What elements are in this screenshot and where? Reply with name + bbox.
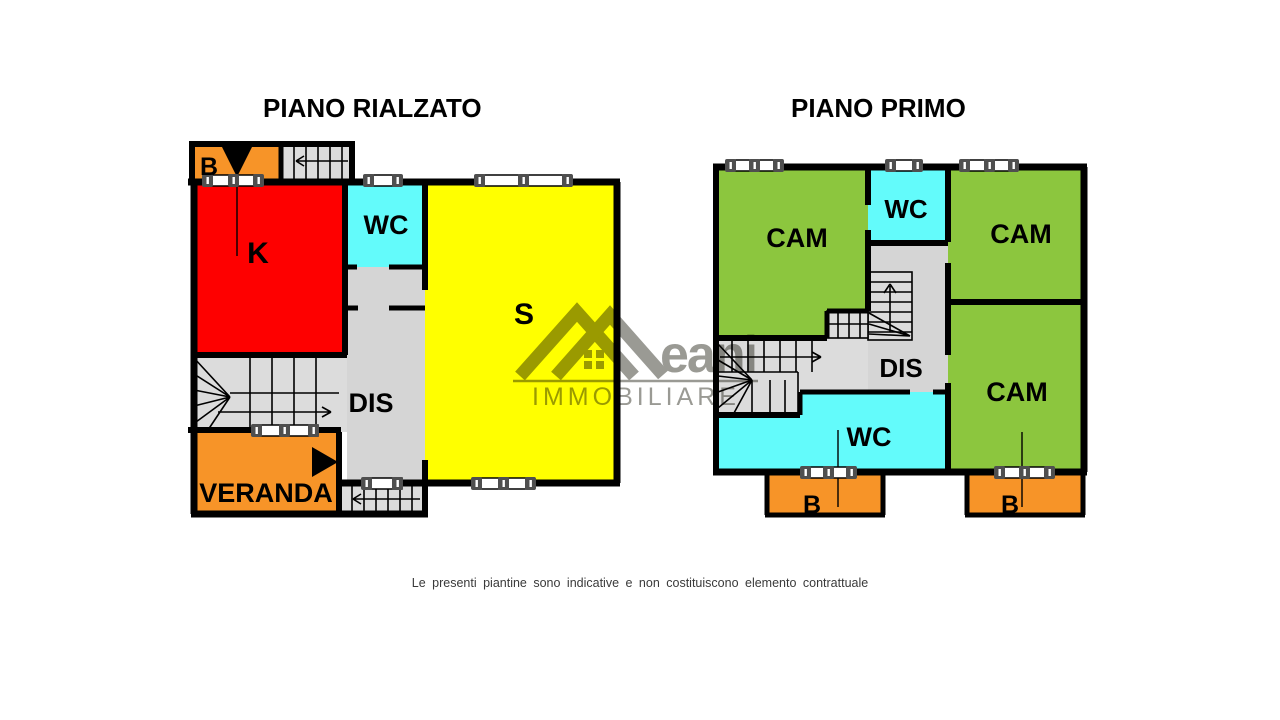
window-symbol [474,174,573,187]
label-kitchen: K [247,237,269,270]
room-living [425,182,617,483]
room-kitchen [191,182,347,357]
window-symbol [959,159,1019,172]
window-symbol [251,424,319,437]
floor-plan-rialzato: B K WC S DIS VERANDA [185,135,625,525]
label-cam-top-left: CAM [766,223,828,253]
disclaimer-text: Le presenti piantine sono indicative e n… [0,576,1280,590]
title-piano-primo: PIANO PRIMO [791,93,966,124]
window-symbol [800,466,857,479]
window-symbol [471,477,536,490]
floorplan-page: PIANO RIALZATO PIANO PRIMO [0,0,1280,720]
label-hall: DIS [348,388,393,418]
label-wc-top: WC [884,194,928,224]
label-veranda: VERANDA [199,478,333,508]
label-wc-bottom: WC [847,422,892,452]
label-hall: DIS [879,353,922,383]
floor-plan-primo: CAM WC CAM CAM DIS WC B B [700,155,1100,530]
room-hall-dis [347,267,425,483]
window-symbol [994,466,1055,479]
label-cam-bottom-right: CAM [986,377,1048,407]
label-balcony-right: B [1001,491,1019,519]
label-wc: WC [364,210,409,240]
label-cam-top-right: CAM [990,219,1052,249]
label-balcony: B [200,153,218,181]
label-balcony-left: B [803,491,821,519]
window-symbol [725,159,784,172]
label-living: S [514,298,534,331]
window-symbol [361,477,403,490]
window-symbol [363,174,403,187]
window-symbol [885,159,923,172]
title-piano-rialzato: PIANO RIALZATO [263,93,482,124]
